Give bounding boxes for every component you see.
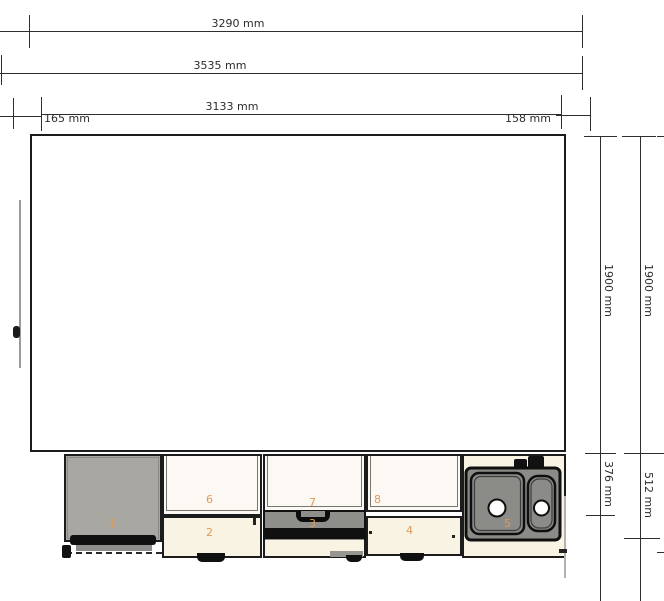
item-number-2: 2 <box>206 527 213 539</box>
kitchen-plan-view: 3290 mm 3535 mm 3133 mm 165 mm 158 mm 19… <box>0 0 664 601</box>
dim-tick <box>624 538 660 539</box>
dim-label-376: 376 mm <box>602 452 615 516</box>
base-cabinet-4[interactable] <box>366 516 462 556</box>
dim-tick <box>590 97 591 131</box>
dim-line-158 <box>556 115 591 116</box>
dim-label-3290: 3290 mm <box>212 17 265 30</box>
appliance-foot <box>62 545 71 558</box>
item-number-1: 1 <box>109 518 116 530</box>
dim-line-right-inner <box>600 136 601 601</box>
dim-tick <box>582 56 583 90</box>
cabinet-inner-line <box>370 456 458 507</box>
door-leaf[interactable] <box>19 200 21 368</box>
dim-label-1900-outer: 1900 mm <box>642 250 655 330</box>
dim-line-3133 <box>42 114 562 115</box>
cabinet-dot-mark <box>452 535 455 538</box>
door-swing-dashes <box>66 552 162 554</box>
item-number-5: 5 <box>504 518 511 530</box>
sink-graphic[interactable] <box>464 456 564 558</box>
dim-tick <box>657 136 664 137</box>
dim-tick <box>13 98 14 129</box>
end-panel <box>564 496 566 578</box>
appliance-front-bar <box>70 535 156 545</box>
item-number-7: 7 <box>309 497 316 509</box>
dim-tick <box>29 15 30 48</box>
drain-icon <box>534 501 549 516</box>
dim-line-3290 <box>0 31 583 32</box>
dim-tick <box>622 136 656 137</box>
item-number-8: 8 <box>374 494 381 506</box>
dim-tick <box>582 15 583 48</box>
dim-line-165 <box>0 116 42 117</box>
item-number-4: 4 <box>406 525 413 537</box>
room-outline <box>30 134 566 452</box>
drain-icon <box>489 500 506 517</box>
dim-tick <box>561 95 562 129</box>
item-number-6: 6 <box>206 494 213 506</box>
dim-label-3133: 3133 mm <box>206 100 259 113</box>
dim-label-165: 165 mm <box>44 112 90 125</box>
oven-base-handle <box>346 555 362 562</box>
cabinet-corner-mark <box>253 518 256 525</box>
dim-tick <box>41 97 42 131</box>
dim-label-3535: 3535 mm <box>194 59 247 72</box>
dim-label-1900-inner: 1900 mm <box>602 250 615 330</box>
dim-tick <box>624 453 657 454</box>
dim-tick <box>1 55 2 85</box>
base-cabinet-2-handle <box>197 553 225 562</box>
dim-tick <box>584 136 617 137</box>
wall-cabinet-6[interactable] <box>162 454 262 516</box>
door-handle <box>13 326 20 338</box>
appliance-plinth <box>76 545 152 551</box>
cabinet-dot-mark <box>369 531 372 534</box>
dim-tick <box>657 552 664 553</box>
dim-line-right-outer <box>640 136 641 601</box>
dim-tick <box>657 453 664 454</box>
item-number-3: 3 <box>309 518 316 530</box>
dim-line-3535 <box>0 73 583 74</box>
base-cabinet-4-handle <box>400 553 424 561</box>
dim-label-158: 158 mm <box>505 112 551 125</box>
dim-label-512: 512 mm <box>642 455 655 535</box>
cabinet-corner-mark <box>559 549 567 553</box>
